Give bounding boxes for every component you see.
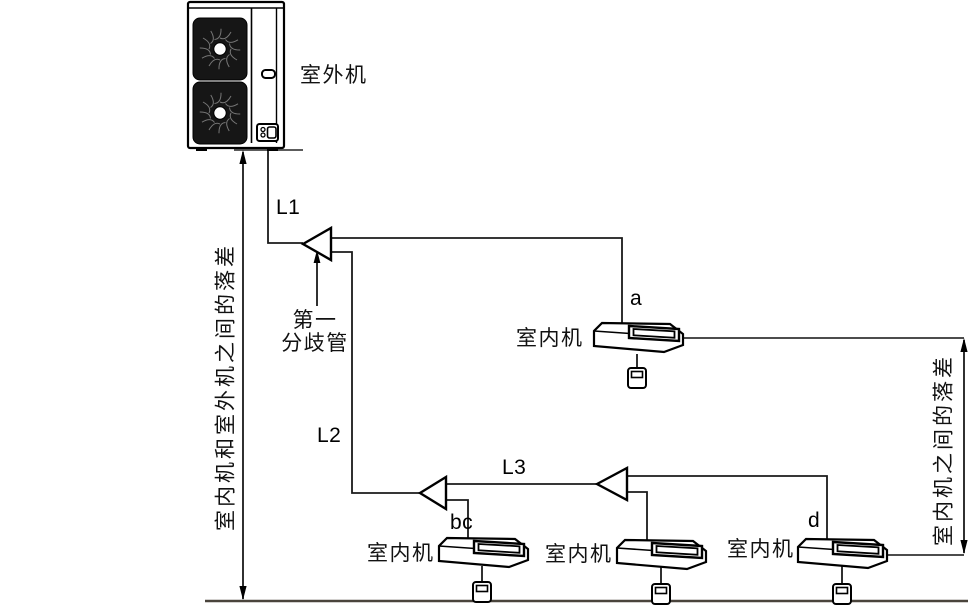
pipe-l3-label: L3 [502, 456, 526, 480]
pipe-l2-label: L2 [317, 424, 341, 448]
pipe-branch3-to-unit-d [627, 476, 827, 544]
remote-control-icon [628, 368, 646, 388]
unit-id-d: d [808, 509, 820, 533]
indoor-unit-label-d: 室内机 [727, 538, 795, 561]
pipe-l2 [331, 252, 420, 493]
unit-id-a: a [630, 287, 642, 311]
pipe-branch3-to-unit-c [627, 492, 647, 544]
dimension-line-right [960, 338, 967, 554]
indoor-unit-label-bc: 室内机 [367, 542, 435, 565]
indoor-unit-d [798, 539, 887, 568]
arrow-up-icon [960, 338, 967, 352]
first-branch-label: 第一 分歧管 [279, 309, 351, 355]
dimension-label-indoor-indoor: 室内机之间的落差 [933, 354, 956, 546]
arrow-down-icon [960, 540, 967, 554]
fan-icon [193, 18, 247, 80]
dimension-label-outdoor-indoor: 室内机和室外机之间的落差 [215, 243, 238, 531]
piping-diagram: 室外机 L1 L2 L3 第一 分歧管 室内机 a 室内机 bc 室内机 室内机… [0, 0, 976, 608]
indoor-unit-label-c: 室内机 [545, 543, 613, 566]
outdoor-unit-label: 室外机 [300, 64, 368, 87]
unit-id-bc: bc [450, 511, 473, 535]
remote-control-icon [473, 582, 491, 602]
fan-icon [193, 82, 247, 144]
pipe-branch1-to-unit-a [331, 238, 622, 330]
pipe-l1-label: L1 [276, 196, 300, 220]
first-branch-pointer [314, 250, 321, 306]
pipe-connection-box [257, 124, 278, 141]
outdoor-unit [188, 2, 284, 151]
indoor-unit-a [594, 323, 683, 352]
indoor-unit-c [617, 540, 706, 569]
dimension-line-left [239, 150, 246, 600]
remote-control-icon [833, 584, 851, 604]
remote-control-icon [652, 584, 670, 604]
indoor-unit-bc [439, 538, 528, 567]
arrow-down-icon [239, 586, 246, 600]
branch-pipe-3-icon [597, 468, 627, 500]
diagram-lines-layer [0, 0, 976, 608]
indoor-unit-label-a: 室内机 [516, 327, 584, 350]
arrow-up-icon [239, 150, 246, 164]
pipe-l1 [268, 139, 303, 243]
branch-pipe-2-icon [420, 477, 446, 509]
handle-icon [262, 70, 275, 78]
